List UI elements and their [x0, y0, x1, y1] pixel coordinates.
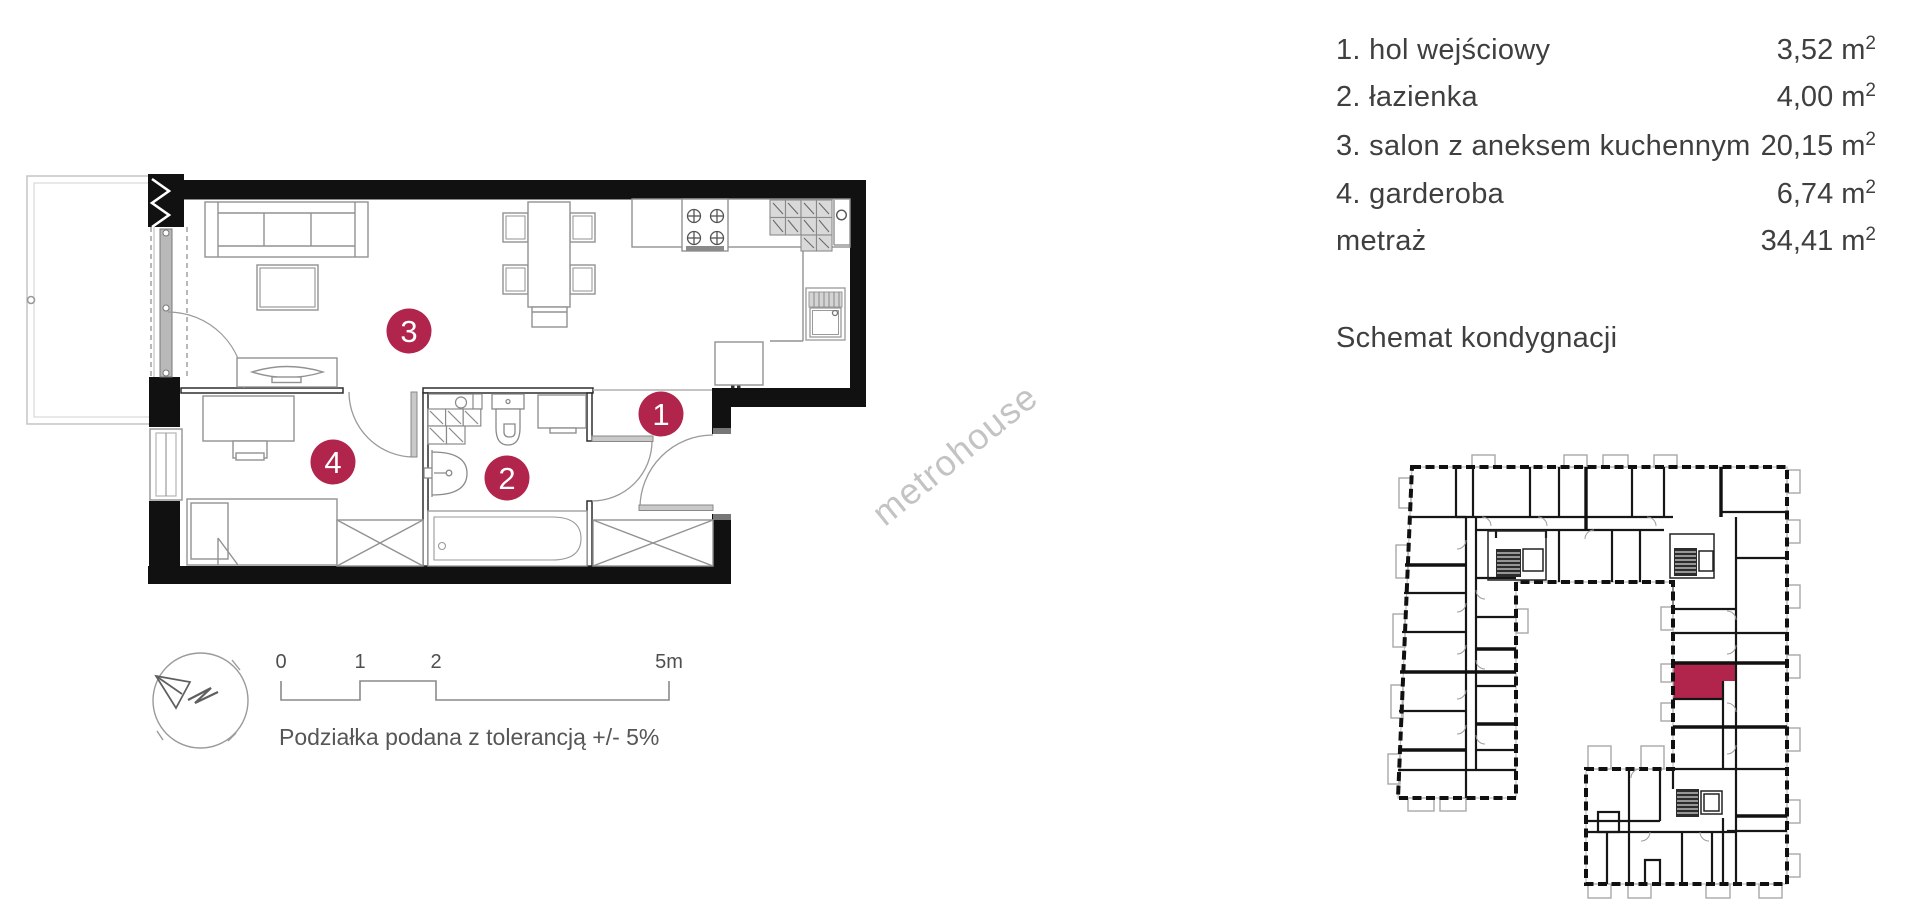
- svg-text:3: 3: [400, 314, 417, 349]
- svg-text:2: 2: [498, 461, 515, 496]
- svg-text:1: 1: [652, 397, 669, 432]
- svg-text:4: 4: [324, 445, 341, 480]
